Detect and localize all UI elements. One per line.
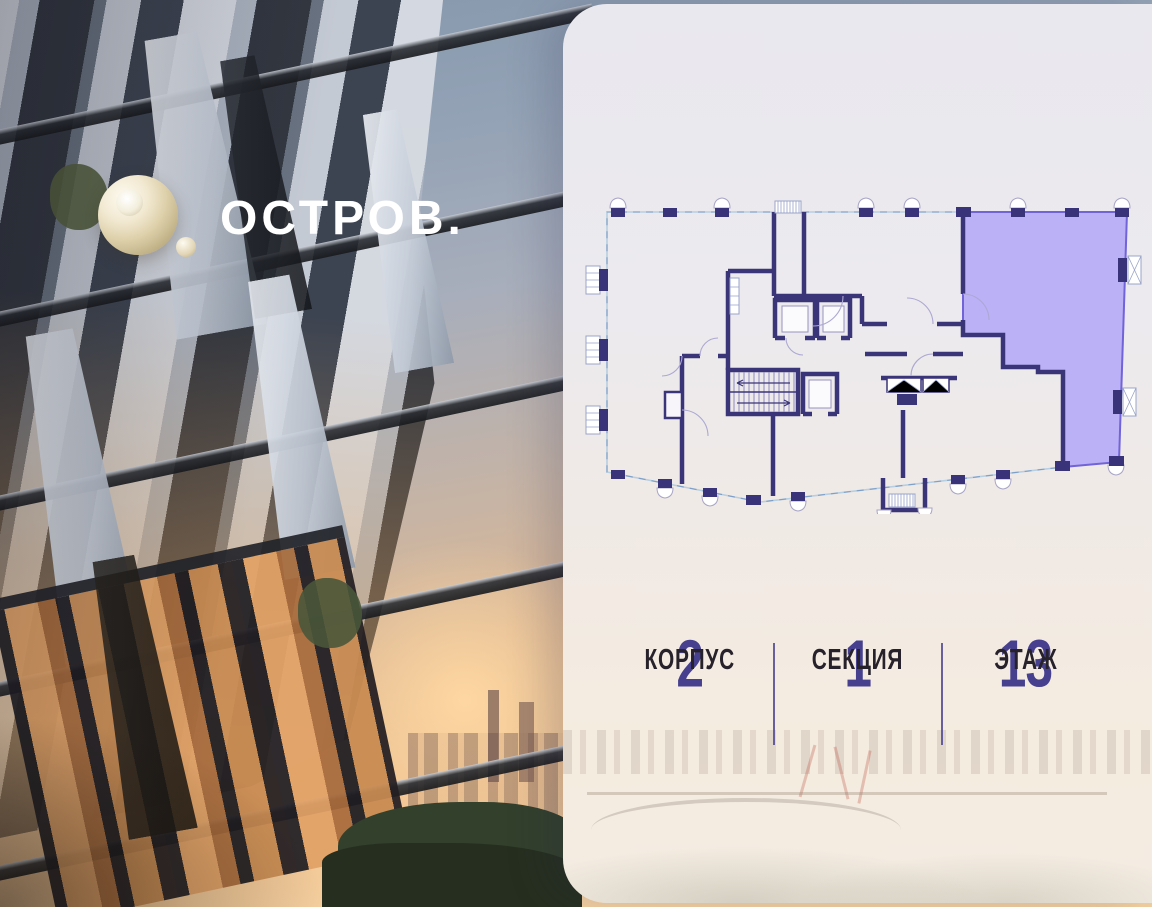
stat-floor-label: ЭТАЖ [994, 644, 1057, 677]
shelf-hatch [730, 278, 739, 314]
logo-text: ОСТРОВ. [220, 191, 465, 246]
stat-section-label: СЕКЦИЯ [812, 644, 903, 677]
stat-divider [773, 643, 775, 745]
page-root: ОСТРОВ. [0, 0, 1152, 907]
ghost-bridge-deck [587, 792, 1107, 795]
stat-building: 2 КОРПУС [615, 634, 765, 754]
stair-treads [730, 372, 796, 412]
ghost-treeline [563, 822, 1152, 903]
unit-highlight[interactable] [963, 212, 1127, 467]
brand-logo[interactable]: ОСТРОВ. [88, 158, 548, 278]
torus-o-icon [88, 163, 196, 273]
stat-floor: 13 ЭТАЖ [951, 634, 1101, 754]
unit-stats-row: 2 КОРПУС 1 СЕКЦИЯ 13 ЭТАЖ [563, 634, 1152, 754]
floor-plan [585, 196, 1145, 514]
stat-building-label: КОРПУС [644, 644, 734, 677]
stat-section: 1 СЕКЦИЯ [783, 634, 933, 754]
stat-divider [941, 643, 943, 745]
info-card: 2 КОРПУС 1 СЕКЦИЯ 13 ЭТАЖ [563, 4, 1152, 903]
closet-boxes [887, 378, 949, 405]
